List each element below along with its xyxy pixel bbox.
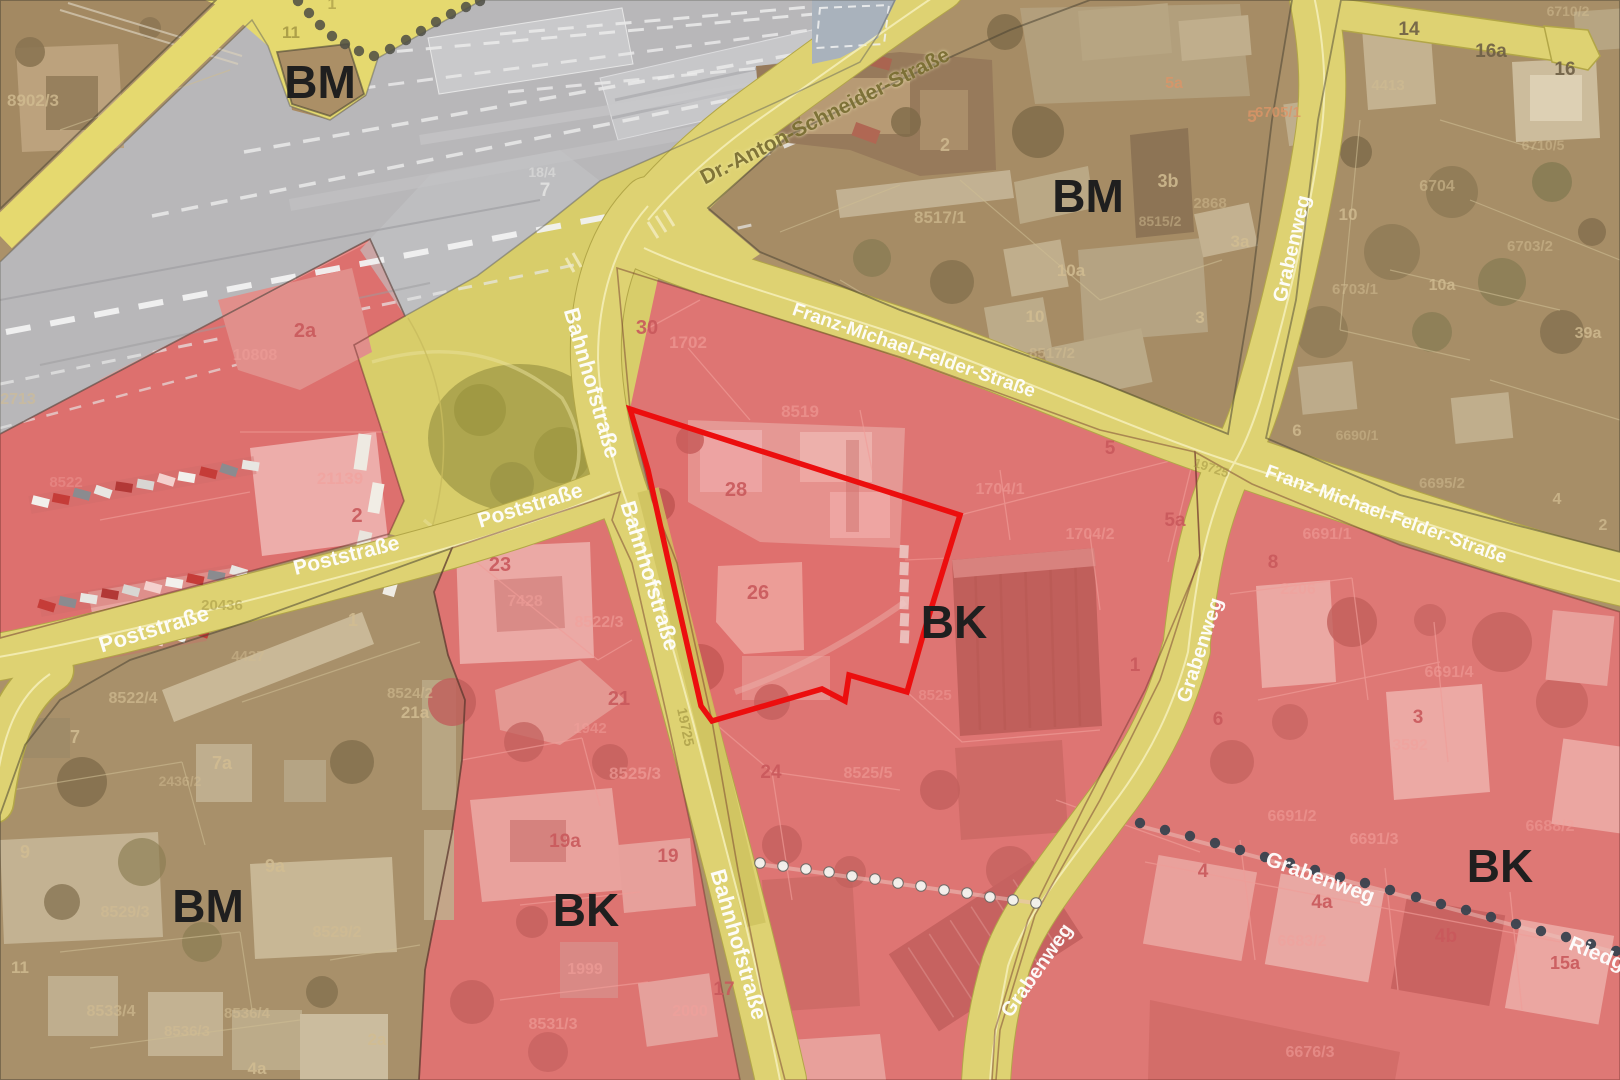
svg-text:18/4: 18/4 bbox=[528, 164, 555, 180]
svg-text:17: 17 bbox=[713, 979, 734, 1000]
svg-text:9a: 9a bbox=[265, 856, 286, 876]
svg-text:3592: 3592 bbox=[1392, 737, 1428, 754]
svg-text:8522/4: 8522/4 bbox=[109, 690, 158, 707]
svg-text:21a: 21a bbox=[401, 703, 430, 722]
svg-text:14: 14 bbox=[1398, 19, 1420, 40]
svg-text:4: 4 bbox=[1198, 861, 1209, 882]
svg-text:7428: 7428 bbox=[507, 593, 543, 610]
svg-text:10a: 10a bbox=[1429, 277, 1456, 294]
svg-text:2436/2: 2436/2 bbox=[159, 773, 202, 789]
svg-text:6691/4: 6691/4 bbox=[1425, 664, 1474, 681]
svg-text:1999: 1999 bbox=[567, 961, 603, 978]
svg-text:4: 4 bbox=[1553, 491, 1562, 508]
svg-text:10: 10 bbox=[1339, 205, 1358, 224]
svg-text:4413: 4413 bbox=[1371, 77, 1404, 94]
svg-text:6710/2: 6710/2 bbox=[1547, 3, 1590, 19]
svg-text:21139: 21139 bbox=[317, 469, 363, 488]
svg-text:5a: 5a bbox=[1165, 75, 1183, 92]
svg-text:10a: 10a bbox=[1057, 261, 1086, 280]
svg-text:6688/2: 6688/2 bbox=[1526, 818, 1575, 835]
svg-text:9: 9 bbox=[20, 842, 30, 862]
svg-text:8531/3: 8531/3 bbox=[529, 1016, 578, 1033]
svg-text:19: 19 bbox=[657, 846, 678, 867]
svg-text:6703/1: 6703/1 bbox=[1332, 281, 1378, 298]
svg-text:3b: 3b bbox=[1157, 171, 1178, 191]
svg-text:8524/2: 8524/2 bbox=[387, 685, 433, 702]
svg-text:6690/1: 6690/1 bbox=[1336, 427, 1379, 443]
svg-text:1: 1 bbox=[348, 610, 358, 630]
svg-text:39a: 39a bbox=[1575, 325, 1602, 342]
svg-text:6710/5: 6710/5 bbox=[1522, 137, 1565, 153]
svg-text:8529/2: 8529/2 bbox=[313, 924, 362, 941]
svg-text:2: 2 bbox=[351, 505, 362, 527]
svg-text:21: 21 bbox=[608, 688, 630, 710]
svg-text:10808: 10808 bbox=[233, 347, 278, 364]
svg-text:2868: 2868 bbox=[1193, 195, 1226, 212]
svg-text:24: 24 bbox=[760, 762, 782, 783]
svg-text:30: 30 bbox=[636, 317, 658, 339]
svg-text:3: 3 bbox=[1195, 308, 1204, 327]
svg-text:6691/3: 6691/3 bbox=[1350, 831, 1399, 848]
svg-text:8522: 8522 bbox=[49, 474, 82, 491]
svg-text:1: 1 bbox=[1130, 655, 1141, 676]
svg-text:1942: 1942 bbox=[573, 720, 606, 737]
svg-text:8536/4: 8536/4 bbox=[224, 1005, 271, 1022]
svg-text:3a: 3a bbox=[1231, 232, 1250, 251]
svg-text:2: 2 bbox=[1599, 517, 1608, 534]
svg-text:8536/3: 8536/3 bbox=[164, 1023, 210, 1040]
svg-text:8525/3: 8525/3 bbox=[609, 764, 661, 783]
svg-text:2713: 2713 bbox=[0, 391, 36, 408]
svg-text:3: 3 bbox=[1413, 707, 1424, 728]
svg-text:7a: 7a bbox=[212, 753, 233, 773]
svg-text:1702: 1702 bbox=[669, 333, 707, 352]
svg-text:6: 6 bbox=[1292, 421, 1301, 440]
svg-text:6676/3: 6676/3 bbox=[1286, 1044, 1335, 1061]
svg-text:8517/2: 8517/2 bbox=[1029, 345, 1075, 362]
svg-text:6691/2: 6691/2 bbox=[1268, 808, 1317, 825]
svg-text:5a: 5a bbox=[1164, 510, 1186, 531]
svg-text:6695/2: 6695/2 bbox=[1419, 475, 1465, 492]
svg-text:6703/2: 6703/2 bbox=[1507, 238, 1553, 255]
svg-text:11: 11 bbox=[282, 23, 300, 42]
svg-text:2: 2 bbox=[940, 135, 950, 155]
svg-text:8515/2: 8515/2 bbox=[1139, 213, 1182, 229]
svg-text:BM: BM bbox=[1052, 170, 1124, 222]
svg-text:6683/2: 6683/2 bbox=[1278, 933, 1327, 950]
svg-text:7: 7 bbox=[540, 180, 551, 201]
svg-text:8525/5: 8525/5 bbox=[844, 765, 893, 782]
svg-text:4a: 4a bbox=[248, 1059, 267, 1078]
svg-text:6705/1: 6705/1 bbox=[1255, 104, 1301, 121]
svg-text:8522/3: 8522/3 bbox=[575, 614, 624, 631]
svg-text:BK: BK bbox=[921, 596, 987, 648]
svg-text:2a: 2a bbox=[368, 1030, 387, 1049]
svg-text:BK: BK bbox=[1467, 840, 1533, 892]
svg-text:8517/1: 8517/1 bbox=[914, 208, 966, 227]
svg-text:BM: BM bbox=[284, 56, 356, 108]
svg-text:6: 6 bbox=[1213, 709, 1224, 730]
svg-text:11: 11 bbox=[11, 958, 29, 977]
svg-text:BK: BK bbox=[553, 884, 619, 936]
svg-text:7: 7 bbox=[70, 727, 80, 747]
svg-text:4427: 4427 bbox=[231, 648, 264, 665]
svg-text:8529/3: 8529/3 bbox=[101, 904, 150, 921]
svg-text:BM: BM bbox=[172, 880, 244, 932]
svg-text:10: 10 bbox=[1026, 307, 1045, 326]
svg-text:4b: 4b bbox=[1435, 926, 1457, 947]
svg-text:16: 16 bbox=[1554, 59, 1575, 80]
svg-text:15a: 15a bbox=[1550, 953, 1581, 973]
svg-text:19a: 19a bbox=[549, 831, 581, 852]
svg-text:1704/2: 1704/2 bbox=[1066, 526, 1115, 543]
svg-text:2000: 2000 bbox=[672, 1003, 708, 1020]
svg-text:6704: 6704 bbox=[1419, 178, 1455, 195]
svg-text:1704/1: 1704/1 bbox=[976, 481, 1025, 498]
svg-text:8519: 8519 bbox=[781, 402, 819, 421]
svg-text:1: 1 bbox=[328, 0, 337, 13]
svg-text:8902/3: 8902/3 bbox=[7, 91, 59, 110]
svg-text:5: 5 bbox=[1247, 107, 1256, 126]
svg-text:23: 23 bbox=[489, 554, 511, 576]
svg-text:2206: 2206 bbox=[1280, 581, 1316, 598]
svg-text:16a: 16a bbox=[1475, 41, 1507, 62]
svg-text:6691/1: 6691/1 bbox=[1303, 526, 1352, 543]
svg-text:5: 5 bbox=[1105, 438, 1116, 459]
svg-text:8525: 8525 bbox=[918, 687, 951, 704]
svg-text:8: 8 bbox=[1268, 552, 1279, 573]
svg-text:26: 26 bbox=[747, 582, 769, 604]
svg-text:2a: 2a bbox=[294, 320, 317, 342]
svg-text:8533/4: 8533/4 bbox=[87, 1003, 136, 1020]
svg-text:28: 28 bbox=[725, 479, 747, 501]
svg-text:4a: 4a bbox=[1311, 892, 1333, 913]
svg-text:20436: 20436 bbox=[201, 597, 243, 614]
